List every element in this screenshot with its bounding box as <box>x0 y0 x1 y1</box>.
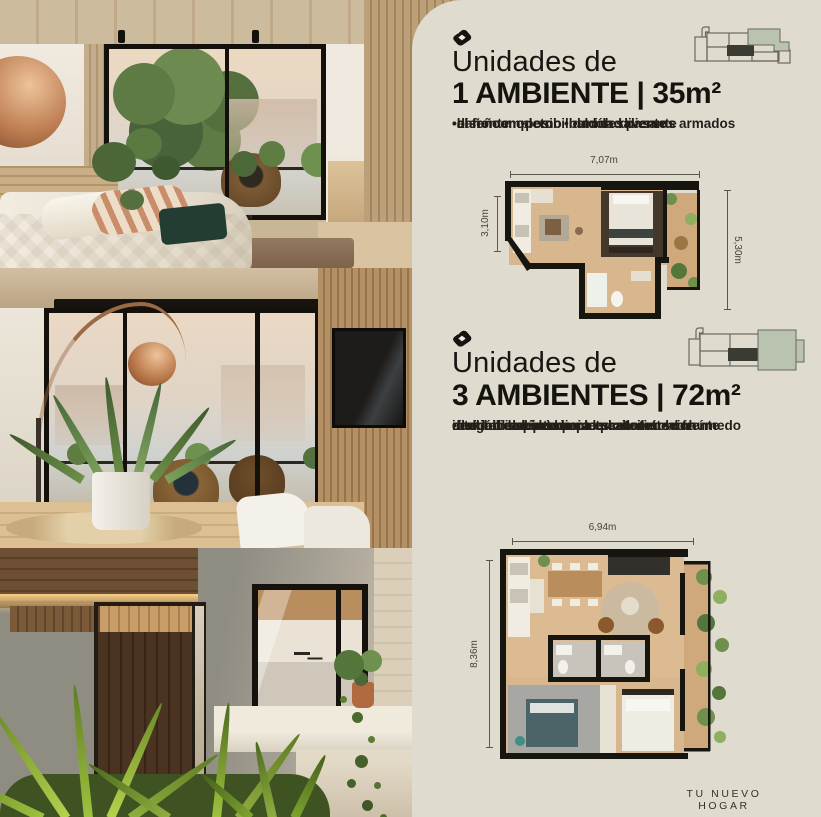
potted-plant <box>334 650 364 680</box>
photo-living <box>0 268 412 548</box>
building-diagram-unit3 <box>680 324 806 378</box>
track-light <box>252 30 259 43</box>
plan1-drawing <box>505 181 703 319</box>
hanging-vine <box>340 696 347 703</box>
window-mullion <box>255 313 260 511</box>
white-chair <box>235 490 312 548</box>
fern <box>228 728 348 817</box>
plan2-left-label: 8,36m <box>469 624 481 684</box>
unit3-title: Unidades de <box>452 347 617 380</box>
photo-patio <box>0 548 412 817</box>
plan1-left-label: 3,10m <box>480 193 492 253</box>
unit1-subtitle: 1 AMBIENTE | 35m² <box>452 77 721 111</box>
info-panel: Unidades de 1 AMBIENTE | 35m² •diseño mo… <box>412 0 821 817</box>
throw-blanket <box>158 203 227 246</box>
gem-icon <box>452 330 472 347</box>
plan2-width-line <box>512 541 694 542</box>
white-pot <box>92 472 150 530</box>
monstera-plant <box>82 112 178 208</box>
balcony-plants <box>259 141 285 167</box>
city-view <box>221 365 305 441</box>
window-mullion <box>225 49 229 215</box>
plan2-drawing <box>500 549 735 764</box>
plan1-right-label: 5,30m <box>731 220 743 280</box>
potted-plant <box>50 376 220 480</box>
unit3-subtitle: 3 AMBIENTES | 72m² <box>452 379 740 413</box>
gem-icon <box>452 29 472 46</box>
tagline: TU NUEVO HOGAR <box>664 788 784 812</box>
white-chair <box>304 506 370 548</box>
plan2-width-label: 6,94m <box>500 522 705 533</box>
photo-bedroom <box>0 0 412 268</box>
track-light <box>118 30 125 43</box>
tv-screen <box>332 328 406 428</box>
plan1-width-label: 7,07m <box>505 155 703 166</box>
faucet <box>294 652 310 655</box>
flyer: Unidades de 1 AMBIENTE | 35m² •diseño mo… <box>0 0 821 817</box>
transom-window <box>100 606 192 632</box>
unit1-title: Unidades de <box>452 46 617 79</box>
window-mullion <box>336 590 341 706</box>
terracotta-pot <box>352 682 374 708</box>
plan1-width-line <box>510 174 700 175</box>
building-diagram-unit1 <box>684 24 802 72</box>
plan1-left-line <box>497 196 498 252</box>
plan1-right-line <box>727 190 728 310</box>
plan2-left-line <box>489 560 490 748</box>
